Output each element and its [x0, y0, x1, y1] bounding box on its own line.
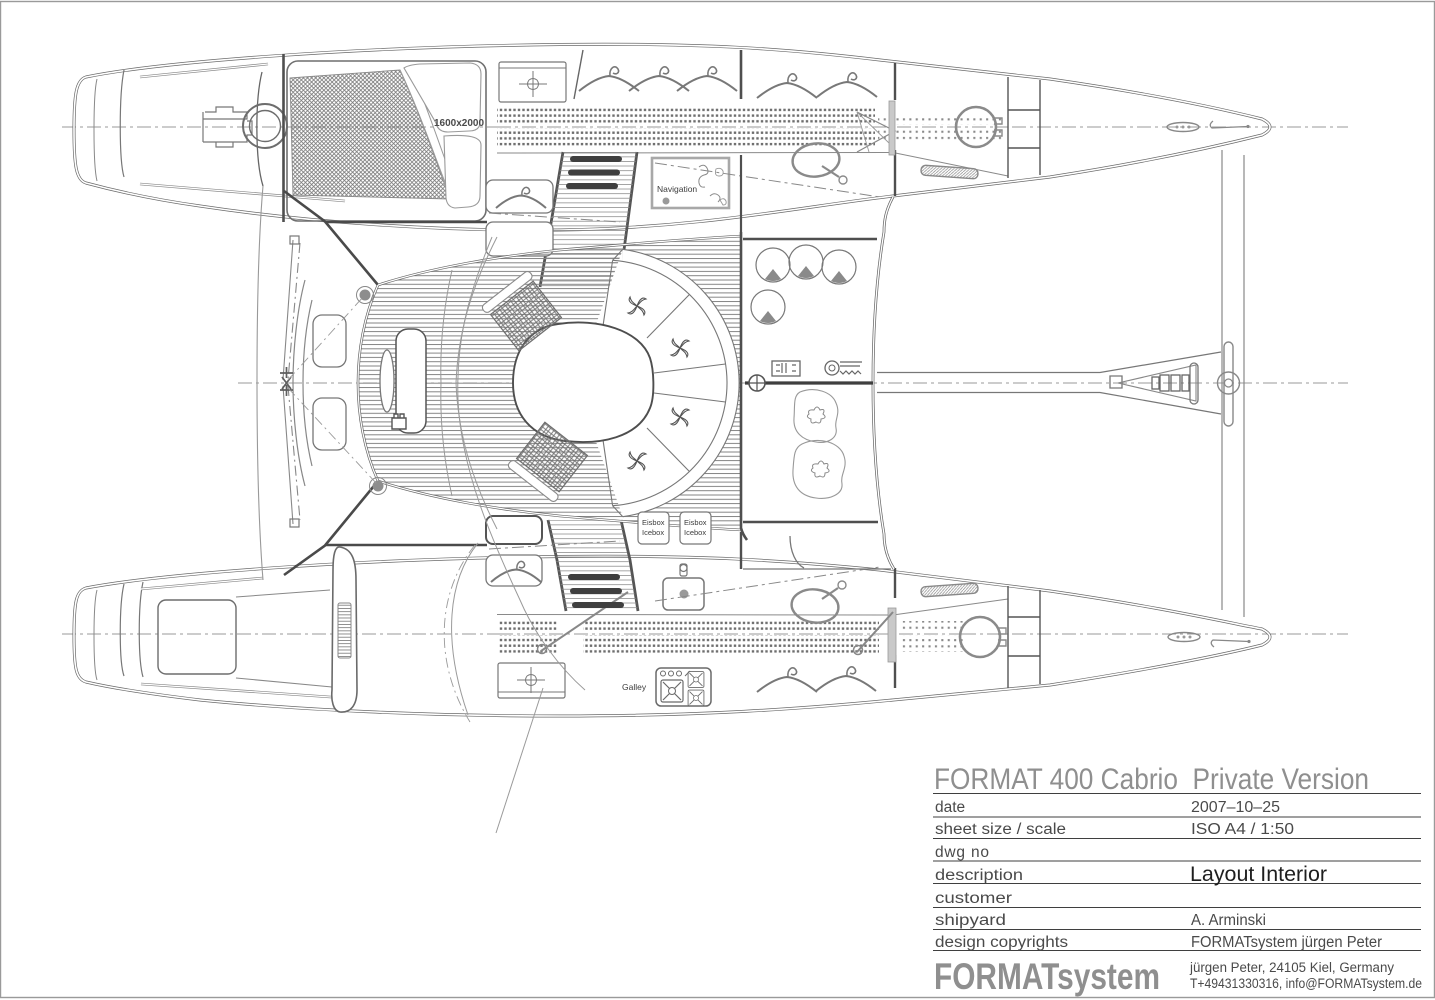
- svg-text:Eisbox: Eisbox: [642, 518, 665, 527]
- svg-text:shipyard: shipyard: [935, 912, 1006, 929]
- svg-text:Icebox: Icebox: [642, 528, 664, 537]
- svg-text:Eisbox: Eisbox: [684, 518, 707, 527]
- svg-text:Navigation: Navigation: [657, 184, 697, 194]
- svg-text:FORMATsystem: FORMATsystem: [934, 956, 1160, 997]
- svg-text:ISO A4 / 1:50: ISO A4 / 1:50: [1191, 821, 1294, 838]
- svg-text:date: date: [935, 799, 965, 816]
- svg-text:FORMATsystem jürgen Peter: FORMATsystem jürgen Peter: [1191, 934, 1382, 951]
- svg-text:1600x2000: 1600x2000: [434, 118, 484, 129]
- svg-text:A. Arminski: A. Arminski: [1191, 912, 1266, 929]
- svg-text:design copyrights: design copyrights: [935, 934, 1068, 951]
- svg-text:customer: customer: [935, 890, 1012, 907]
- svg-text:dwg no: dwg no: [935, 844, 989, 861]
- svg-text:description: description: [935, 867, 1023, 884]
- svg-text:FORMAT 400 Cabrio Private Ver: FORMAT 400 Cabrio Private Version: [934, 763, 1369, 796]
- svg-text:T+49431330316, info@FORMATsyst: T+49431330316, info@FORMATsystem.de: [1190, 976, 1422, 991]
- svg-text:Icebox: Icebox: [684, 528, 706, 537]
- svg-text:Galley: Galley: [622, 682, 647, 692]
- svg-text:jürgen Peter, 24105 Kiel, Germ: jürgen Peter, 24105 Kiel, Germany: [1189, 960, 1394, 975]
- svg-text:Layout Interior: Layout Interior: [1190, 863, 1327, 886]
- svg-text:sheet size / scale: sheet size / scale: [935, 821, 1066, 838]
- svg-text:2007–10–25: 2007–10–25: [1191, 799, 1280, 816]
